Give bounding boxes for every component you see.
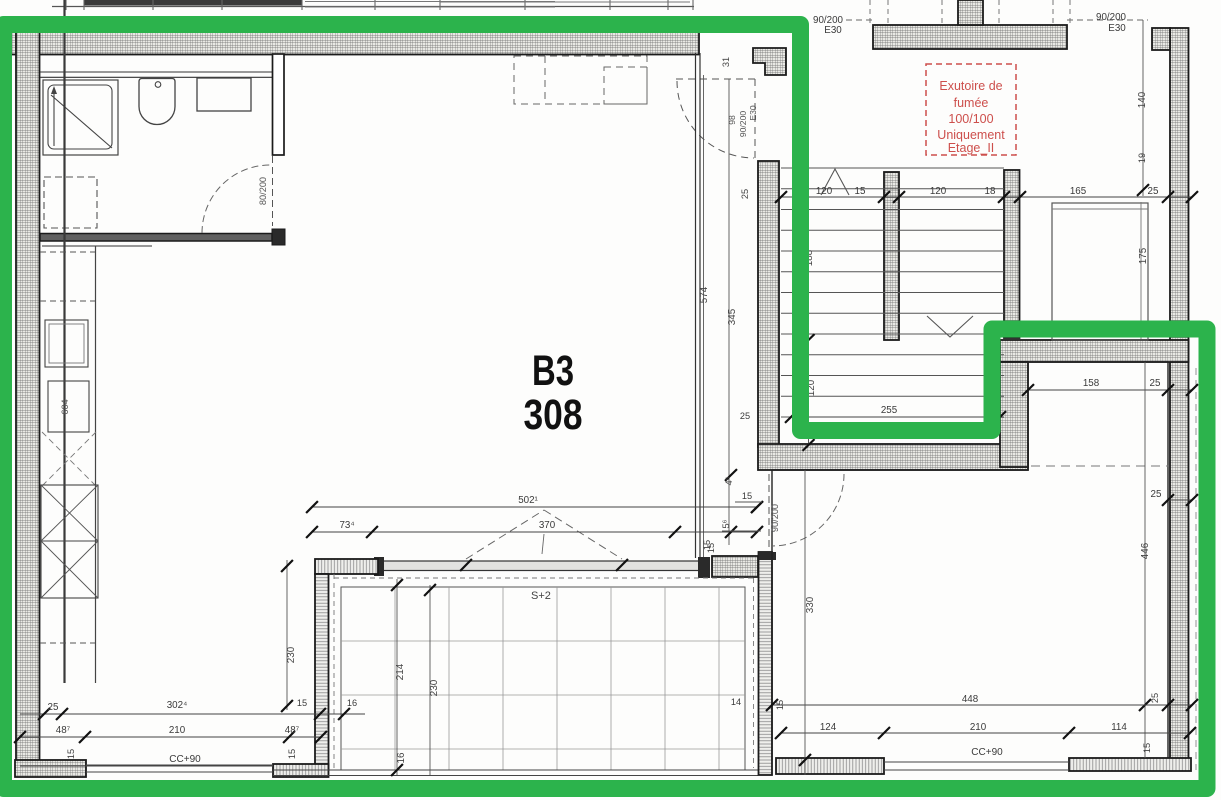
svg-text:15: 15: [287, 749, 297, 759]
svg-text:15: 15: [66, 749, 76, 759]
svg-text:90/200: 90/200: [1096, 12, 1127, 23]
svg-text:4⁶: 4⁶: [724, 476, 734, 485]
svg-text:114: 114: [1111, 722, 1127, 733]
svg-text:Exutoire de: Exutoire de: [939, 79, 1002, 93]
svg-text:CC+90: CC+90: [971, 747, 1003, 758]
svg-text:330: 330: [805, 596, 816, 613]
svg-text:448: 448: [962, 694, 979, 705]
svg-text:502¹: 502¹: [518, 495, 538, 506]
svg-text:18: 18: [985, 186, 996, 197]
svg-text:B3: B3: [532, 347, 574, 395]
svg-text:25: 25: [740, 411, 750, 421]
svg-text:19: 19: [1137, 153, 1147, 163]
svg-text:604: 604: [60, 399, 70, 414]
svg-text:345: 345: [727, 308, 738, 325]
svg-text:100/100: 100/100: [948, 112, 993, 126]
svg-text:25: 25: [1148, 186, 1159, 197]
svg-text:25: 25: [48, 702, 59, 713]
svg-text:210: 210: [169, 725, 186, 736]
svg-text:302⁴: 302⁴: [167, 700, 188, 711]
svg-text:165: 165: [1070, 186, 1087, 197]
svg-text:124: 124: [820, 722, 837, 733]
svg-text:48⁷: 48⁷: [56, 725, 71, 736]
svg-text:230: 230: [286, 646, 297, 663]
svg-text:140: 140: [1137, 91, 1148, 108]
svg-text:25: 25: [1151, 489, 1162, 500]
svg-text:15: 15: [775, 700, 785, 710]
svg-text:98: 98: [727, 115, 737, 125]
svg-text:16: 16: [396, 752, 407, 763]
svg-text:15: 15: [297, 698, 307, 708]
svg-text:446: 446: [1140, 542, 1151, 559]
svg-text:73⁴: 73⁴: [339, 520, 354, 531]
svg-text:CC+90: CC+90: [169, 754, 201, 765]
svg-text:120: 120: [930, 186, 947, 197]
svg-text:15: 15: [702, 540, 712, 550]
svg-text:S+2: S+2: [531, 590, 551, 602]
svg-text:370: 370: [539, 520, 556, 531]
svg-text:90/200: 90/200: [770, 504, 780, 532]
svg-text:214: 214: [395, 663, 406, 680]
svg-text:574: 574: [699, 286, 710, 303]
svg-text:E30: E30: [1108, 23, 1126, 34]
svg-text:308: 308: [524, 391, 583, 439]
svg-text:31: 31: [721, 57, 731, 67]
svg-text:255: 255: [881, 405, 898, 416]
svg-text:15: 15: [742, 491, 752, 501]
svg-text:25: 25: [1150, 693, 1160, 703]
svg-text:90/200: 90/200: [738, 111, 748, 138]
svg-text:E30: E30: [824, 25, 842, 36]
svg-text:Etage_II: Etage_II: [948, 141, 995, 155]
svg-text:5⁶: 5⁶: [721, 519, 731, 528]
svg-text:80/200: 80/200: [258, 177, 268, 205]
svg-text:25: 25: [1150, 378, 1161, 389]
svg-text:120: 120: [816, 186, 833, 197]
svg-text:230: 230: [429, 679, 440, 696]
svg-text:Uniquement: Uniquement: [937, 128, 1005, 142]
svg-text:E30: E30: [748, 105, 758, 121]
svg-text:210: 210: [970, 722, 987, 733]
svg-text:16: 16: [347, 698, 357, 708]
svg-text:25: 25: [740, 189, 750, 199]
svg-text:15: 15: [855, 186, 866, 197]
svg-text:158: 158: [1083, 378, 1100, 389]
svg-text:fumée: fumée: [954, 96, 989, 110]
svg-text:48⁷: 48⁷: [285, 725, 300, 736]
svg-text:14: 14: [731, 697, 741, 707]
svg-text:15: 15: [1142, 743, 1152, 753]
svg-text:175: 175: [1138, 247, 1149, 264]
